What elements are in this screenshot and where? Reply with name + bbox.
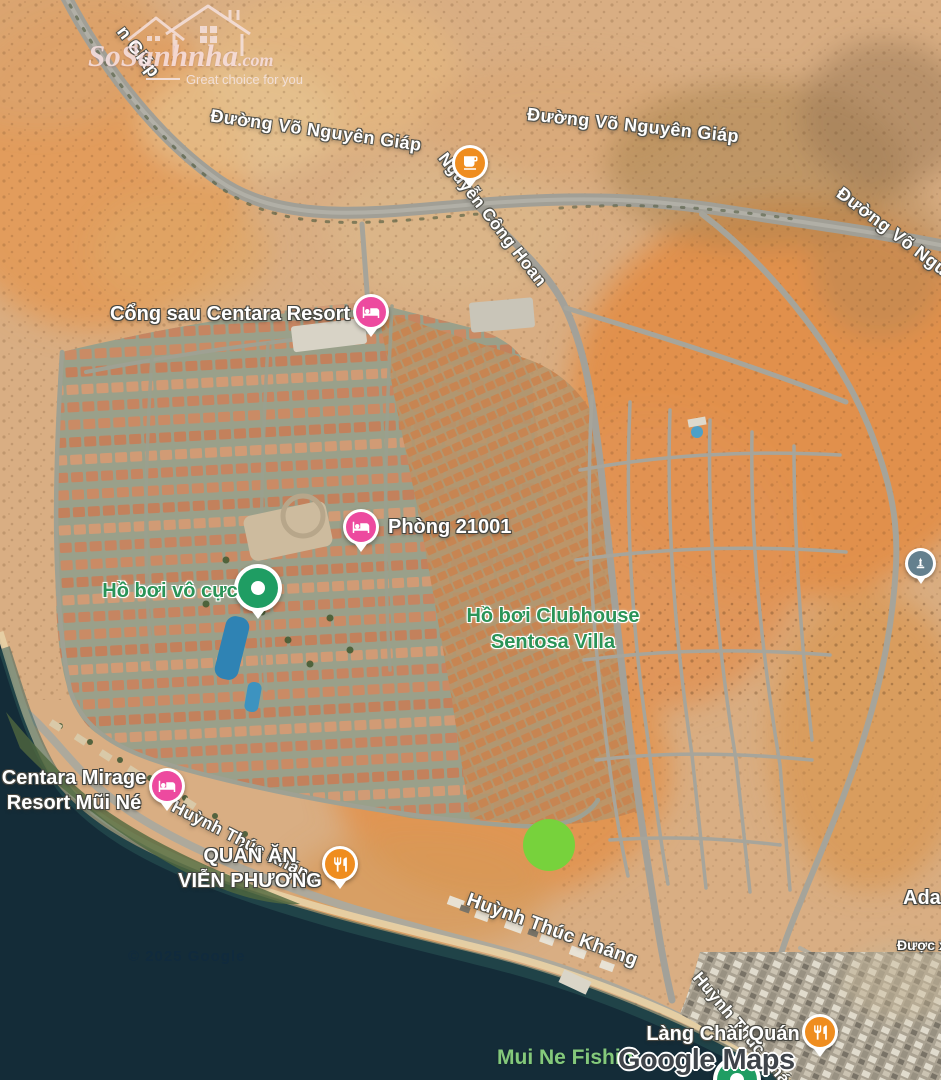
google-copyright: © 2025 Google	[128, 948, 245, 965]
clubhouse-line2: Sentosa Villa	[466, 629, 639, 655]
bed-icon	[356, 297, 386, 327]
quan-an-line1: QUÁN ĂN	[178, 844, 322, 869]
restaurant-pin-lang-chai[interactable]	[802, 1014, 838, 1050]
hotel-pin-cong-sau[interactable]	[353, 294, 389, 330]
hotel-pin-phong-21001[interactable]	[343, 509, 379, 545]
fork-knife-icon	[325, 849, 355, 879]
poi-label-ada-partial[interactable]: Ada	[903, 886, 941, 910]
bed-icon	[346, 512, 376, 542]
centara-line2: Resort Mũi Né	[2, 791, 147, 816]
poi-label-lang-chai-quan[interactable]: Làng Chài Quán	[646, 1022, 799, 1046]
poi-label-ho-boi-vo-cuc[interactable]: Hồ bơi vô cực	[102, 579, 237, 603]
dot-icon	[238, 568, 278, 608]
poi-label-quan-an-vien-phuong[interactable]: QUÁN ĂN VIỄN PHƯƠNG	[178, 844, 322, 894]
brand-tagline: Great choice for you	[146, 72, 303, 87]
brand-tagline-text: Great choice for you	[186, 72, 303, 87]
quan-an-line2: VIỄN PHƯƠNG	[178, 869, 322, 894]
brand-wordmark: SoSanhnha.com	[88, 44, 303, 69]
listing-highlight-circle[interactable]	[523, 819, 575, 871]
map-canvas[interactable]: n Giáp Đường Võ Nguyên Giáp Đường Võ Ngu…	[0, 0, 941, 1080]
clubhouse-line1: Hồ bơi Clubhouse	[466, 603, 639, 629]
cafe-pin[interactable]	[452, 145, 488, 181]
monument-icon	[908, 551, 933, 576]
poi-label-mui-ne-fishing[interactable]: Mui Ne Fishin	[497, 1046, 634, 1070]
bed-icon	[152, 771, 182, 801]
google-maps-logo: Google Maps	[618, 1044, 795, 1077]
centara-line1: Centara Mirage	[2, 766, 147, 791]
pool-pin-vo-cuc[interactable]	[234, 564, 282, 612]
poi-label-clubhouse-sentosa[interactable]: Hồ bơi Clubhouse Sentosa Villa	[466, 603, 639, 655]
poi-label-phong-21001[interactable]: Phòng 21001	[388, 515, 511, 539]
coffee-cup-icon	[455, 148, 485, 178]
brand-suffix: .com	[238, 50, 274, 70]
poi-label-cong-sau-centara[interactable]: Cổng sau Centara Resort	[110, 302, 350, 326]
hotel-pin-centara-mirage[interactable]	[149, 768, 185, 804]
poi-label-duoc-partial: Được x	[897, 937, 941, 954]
restaurant-pin-vien-phuong[interactable]	[322, 846, 358, 882]
sosanhnha-watermark: SoSanhnha.com Great choice for you	[88, 2, 303, 87]
attraction-pin-monument[interactable]	[905, 548, 936, 579]
fork-knife-icon	[805, 1017, 835, 1047]
brand-name: SoSanhnha	[88, 38, 238, 73]
poi-label-centara-mirage[interactable]: Centara Mirage Resort Mũi Né	[2, 766, 147, 816]
